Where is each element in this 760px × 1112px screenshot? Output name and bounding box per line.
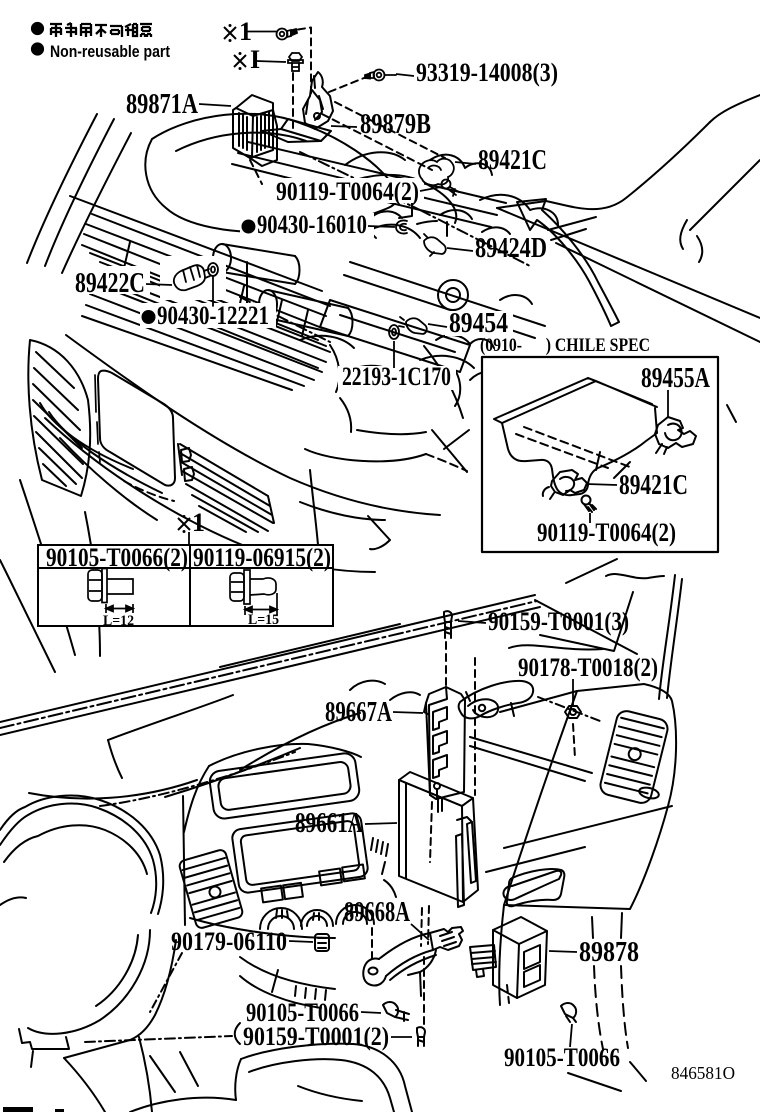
svg-text:846581O: 846581O [671, 1063, 735, 1083]
svg-text:90119-T0064(2): 90119-T0064(2) [537, 518, 676, 547]
svg-text:22193-1C170: 22193-1C170 [342, 362, 451, 391]
svg-text:I: I [250, 45, 260, 74]
svg-text:Non-reusable part: Non-reusable part [50, 42, 170, 61]
svg-text:L=15: L=15 [248, 612, 279, 628]
svg-text:89668A: 89668A [344, 896, 410, 928]
svg-text:90105-T0066: 90105-T0066 [504, 1043, 620, 1072]
svg-text:89422C: 89422C [75, 267, 145, 299]
svg-text:90430-12221: 90430-12221 [157, 301, 269, 330]
svg-text:90159-T0001(3): 90159-T0001(3) [488, 607, 629, 636]
svg-text:1: 1 [239, 17, 252, 46]
svg-text:89424D: 89424D [475, 232, 547, 264]
svg-text:90178-T0018(2): 90178-T0018(2) [518, 653, 658, 682]
svg-text:89667A: 89667A [325, 696, 392, 728]
svg-text:90179-06110: 90179-06110 [171, 927, 287, 956]
svg-text:L=12: L=12 [103, 613, 134, 629]
svg-text:90430-16010: 90430-16010 [257, 210, 367, 239]
svg-text:90119-06915(2): 90119-06915(2) [193, 543, 331, 572]
svg-text:90119-T0064(2): 90119-T0064(2) [276, 177, 419, 206]
svg-text:90105-T0066(2): 90105-T0066(2) [46, 543, 188, 572]
svg-text:89455A: 89455A [641, 362, 710, 394]
svg-text:89879B: 89879B [360, 108, 431, 140]
svg-text:89878: 89878 [579, 936, 639, 968]
svg-text:89421C: 89421C [478, 144, 547, 176]
svg-text:93319-14008(3): 93319-14008(3) [416, 58, 558, 87]
svg-text:89661A: 89661A [295, 807, 363, 839]
svg-text:(0910- ) CHILE SPEC: (0910- ) CHILE SPEC [480, 335, 650, 356]
svg-text:90159-T0001(2): 90159-T0001(2) [243, 1022, 389, 1051]
svg-text:89421C: 89421C [619, 469, 688, 501]
svg-text:89871A: 89871A [126, 88, 198, 120]
svg-text:1: 1 [192, 508, 205, 537]
